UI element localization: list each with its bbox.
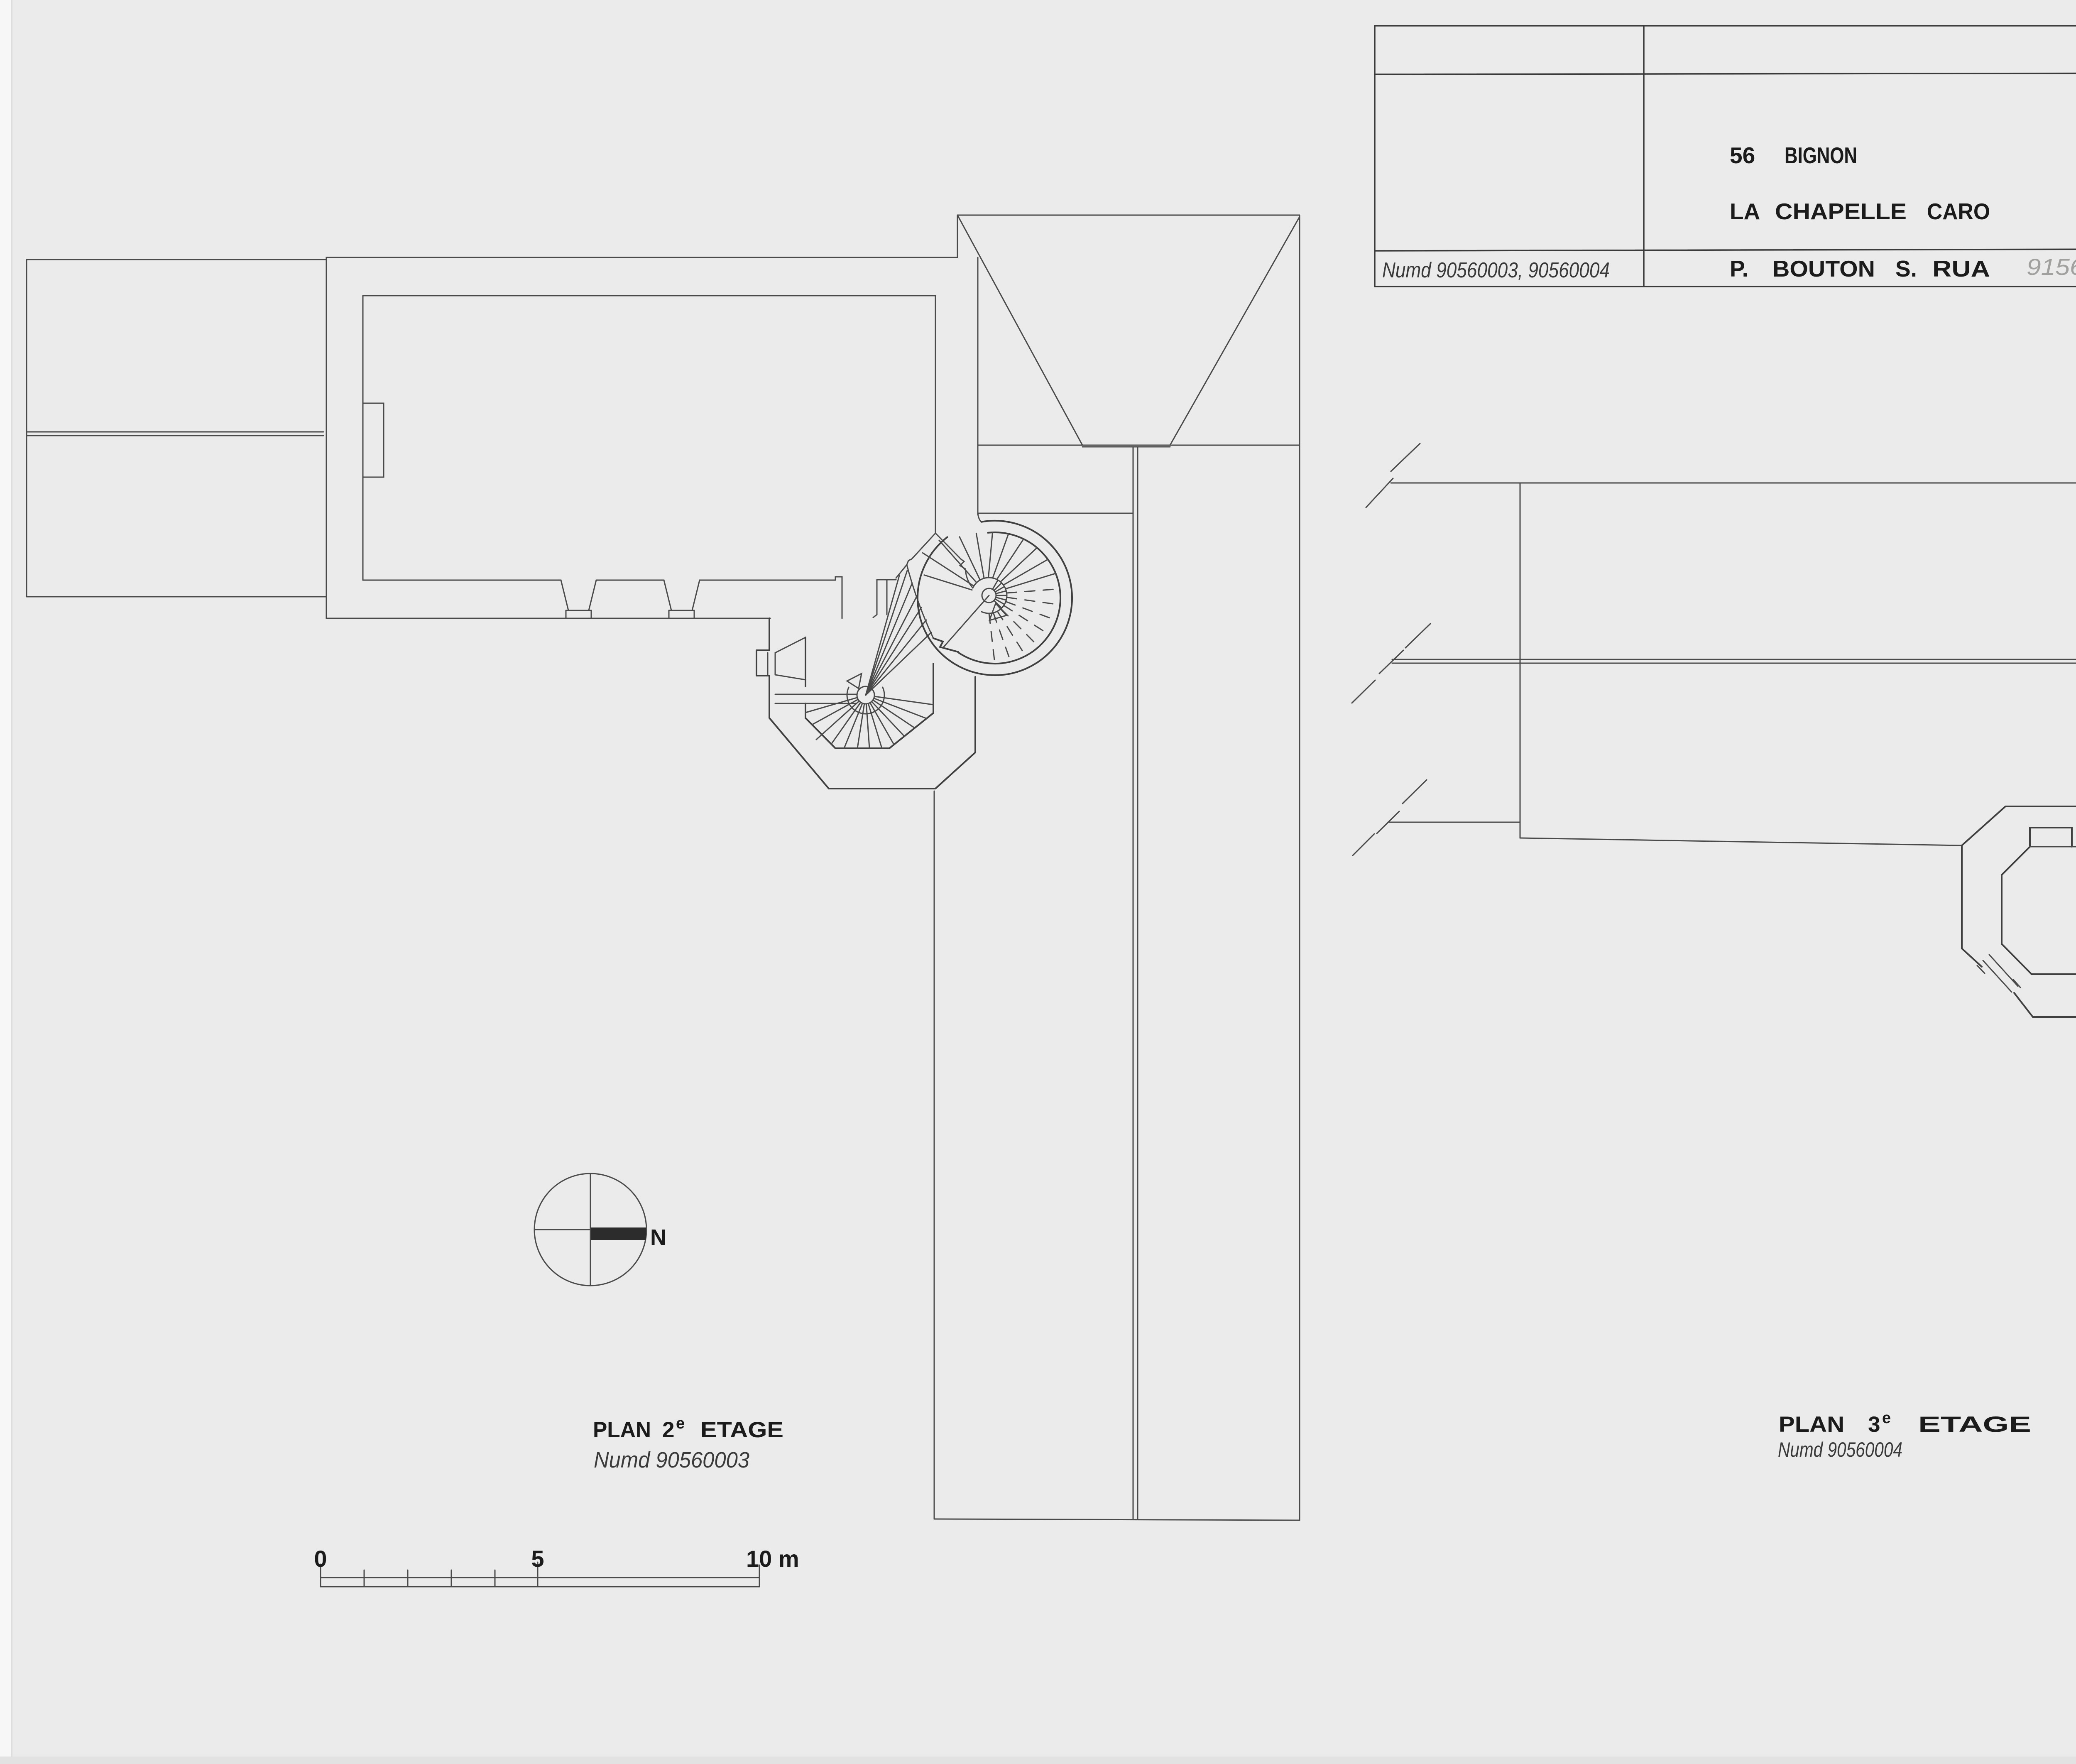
svg-text:Numd 90560004: Numd 90560004 xyxy=(1778,1438,1902,1461)
svg-text:PLAN: PLAN xyxy=(593,1418,651,1442)
svg-text:P.: P. xyxy=(1730,256,1748,282)
svg-text:Numd 90560003, 90560004: Numd 90560003, 90560004 xyxy=(1382,258,1610,282)
svg-text:BIGNON: BIGNON xyxy=(1785,142,1857,168)
svg-text:S.: S. xyxy=(1895,256,1917,282)
svg-text:e: e xyxy=(676,1415,685,1432)
svg-text:Numd 90560003: Numd 90560003 xyxy=(594,1448,749,1472)
svg-text:10 m: 10 m xyxy=(746,1546,799,1572)
svg-text:CHAPELLE: CHAPELLE xyxy=(1775,198,1907,224)
svg-text:2: 2 xyxy=(662,1418,674,1442)
svg-text:N: N xyxy=(650,1225,666,1250)
svg-text:56: 56 xyxy=(1730,142,1755,168)
svg-text:3: 3 xyxy=(1868,1412,1880,1437)
svg-text:9156 05002 A2: 9156 05002 A2 xyxy=(2027,254,2076,280)
svg-text:0: 0 xyxy=(314,1546,327,1572)
svg-text:e: e xyxy=(1882,1409,1891,1427)
svg-text:CARO: CARO xyxy=(1927,198,1990,224)
svg-text:LA: LA xyxy=(1730,198,1760,224)
svg-text:ETAGE: ETAGE xyxy=(1918,1412,2031,1437)
svg-text:PLAN: PLAN xyxy=(1779,1412,1844,1437)
svg-text:BOUTON: BOUTON xyxy=(1772,256,1875,282)
svg-text:ETAGE: ETAGE xyxy=(700,1418,783,1442)
svg-text:5: 5 xyxy=(531,1546,544,1572)
svg-text:RUA: RUA xyxy=(1932,256,1990,282)
